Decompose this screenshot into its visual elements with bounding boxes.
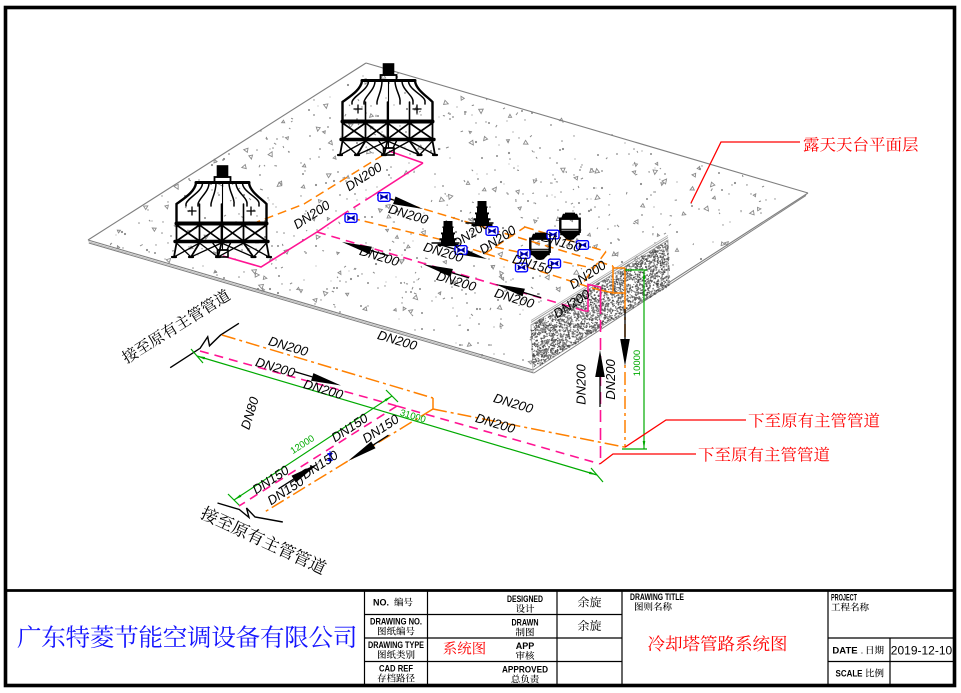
- svg-text:APPROVED: APPROVED: [502, 665, 548, 675]
- svg-text:DRAWN: DRAWN: [512, 618, 539, 628]
- svg-text:CAD REF: CAD REF: [379, 664, 413, 674]
- svg-text:10000: 10000: [632, 350, 643, 376]
- svg-text:APP: APP: [516, 641, 535, 651]
- svg-text:DATE: DATE: [832, 646, 857, 657]
- svg-text:2019-12-10: 2019-12-10: [891, 644, 953, 658]
- svg-text:DRAWING TITLE: DRAWING TITLE: [630, 592, 684, 602]
- svg-text:DN200: DN200: [574, 363, 589, 404]
- svg-text:DRAWING TYPE: DRAWING TYPE: [368, 640, 424, 650]
- svg-text:DN200: DN200: [603, 358, 618, 399]
- svg-text:NO.: NO.: [373, 598, 389, 608]
- svg-text:DRAWING NO.: DRAWING NO.: [370, 617, 422, 627]
- svg-text:SCALE: SCALE: [836, 669, 863, 680]
- svg-text:DESIGNED: DESIGNED: [507, 594, 543, 604]
- svg-text:.: .: [861, 646, 864, 657]
- svg-text:PROJECT: PROJECT: [831, 593, 857, 603]
